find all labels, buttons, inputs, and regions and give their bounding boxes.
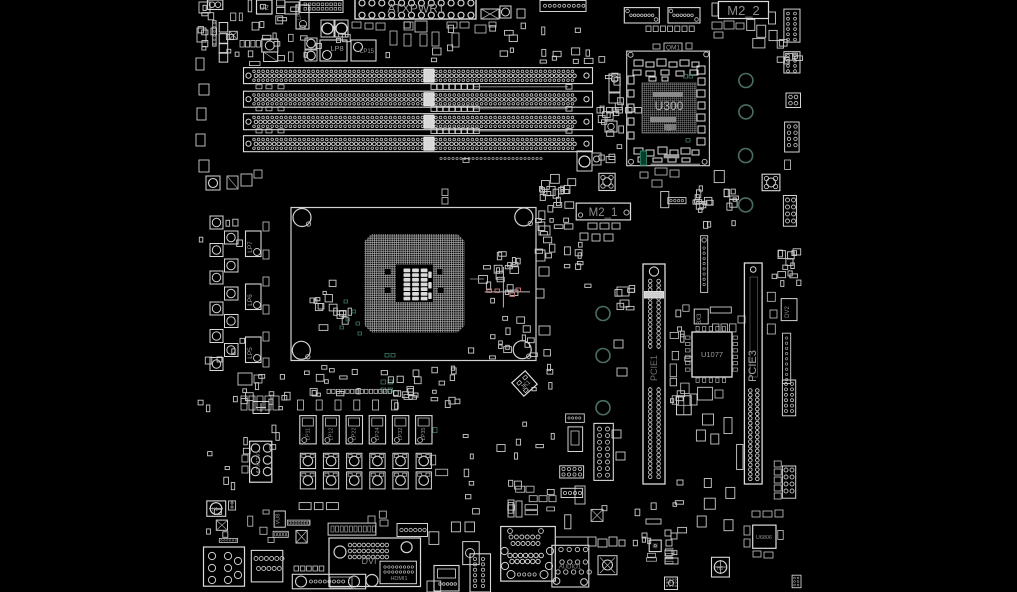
svg-text:LP22: LP22 bbox=[352, 428, 358, 441]
svg-text:M2_2: M2_2 bbox=[727, 3, 760, 18]
svg-text:LP24: LP24 bbox=[375, 428, 381, 441]
svg-text:S: S bbox=[666, 124, 671, 133]
svg-text:LP6: LP6 bbox=[247, 294, 254, 306]
svg-text:U300: U300 bbox=[655, 99, 684, 113]
svg-text:LP12: LP12 bbox=[328, 428, 334, 441]
svg-text:LP5: LP5 bbox=[247, 347, 254, 359]
svg-text:VU8: VU8 bbox=[276, 514, 282, 525]
svg-text:PCIE1: PCIE1 bbox=[649, 355, 659, 381]
svg-text:AUDIO1: AUDIO1 bbox=[559, 565, 582, 571]
svg-text:DV2: DV2 bbox=[785, 306, 791, 318]
svg-text:QM1: QM1 bbox=[666, 45, 680, 52]
svg-text:H1: H1 bbox=[212, 507, 219, 513]
svg-text:ATXPWR1: ATXPWR1 bbox=[387, 2, 444, 16]
svg-text:8X3: 8X3 bbox=[697, 313, 703, 324]
svg-text:DVI: DVI bbox=[361, 556, 376, 566]
svg-text:ATX12V1: ATX12V1 bbox=[256, 450, 262, 473]
svg-text:LP8: LP8 bbox=[330, 44, 343, 53]
svg-text:M2_1: M2_1 bbox=[589, 207, 618, 219]
svg-text:U1077: U1077 bbox=[701, 350, 723, 359]
svg-text:LP15: LP15 bbox=[360, 49, 375, 55]
svg-text:LP7: LP7 bbox=[247, 241, 254, 253]
svg-text:LP32: LP32 bbox=[398, 428, 404, 441]
svg-text:LP35: LP35 bbox=[421, 428, 427, 441]
svg-text:HDMI1: HDMI1 bbox=[390, 576, 407, 582]
svg-text:U6806: U6806 bbox=[756, 535, 772, 541]
svg-text:H3: H3 bbox=[717, 566, 724, 572]
svg-text:LP11: LP11 bbox=[305, 428, 311, 440]
svg-text:PCIE3: PCIE3 bbox=[747, 350, 759, 382]
